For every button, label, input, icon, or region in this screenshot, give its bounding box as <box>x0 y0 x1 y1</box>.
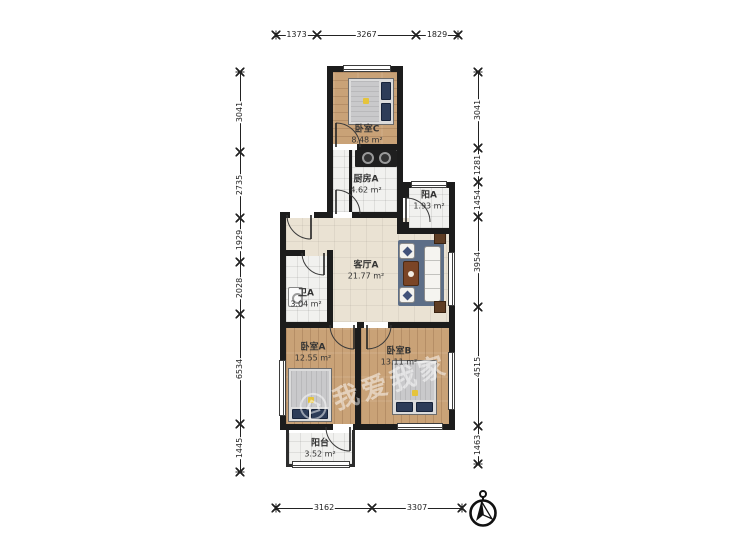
wall <box>403 188 409 198</box>
dimension-endbar <box>474 72 483 73</box>
dimension-tick <box>474 422 483 431</box>
bed-b <box>392 360 437 415</box>
dimension-label: 1929 <box>236 229 244 251</box>
wall <box>388 322 455 328</box>
window <box>292 461 350 468</box>
dimension-tick <box>474 213 483 222</box>
balcony-floor <box>289 433 352 464</box>
window <box>448 352 455 410</box>
window <box>279 360 286 416</box>
dimension-endbar <box>236 472 245 473</box>
wall <box>355 328 361 424</box>
dimension-tick <box>474 178 483 187</box>
corridor-floor <box>333 150 349 212</box>
dimension-endbar <box>474 464 483 465</box>
washing-machine <box>288 287 303 307</box>
dimension-tick <box>368 504 377 513</box>
balcony-wall <box>286 430 289 467</box>
window <box>397 423 443 430</box>
window <box>448 252 455 306</box>
dimension-label: 2028 <box>236 277 244 299</box>
dimension-endbar <box>276 504 277 513</box>
window <box>411 181 447 188</box>
dimension-label: 1445 <box>236 437 244 459</box>
side-table <box>434 301 446 313</box>
dimension-endbar <box>458 31 459 40</box>
window <box>343 65 391 72</box>
wall <box>352 212 403 218</box>
dimension-tick <box>236 214 245 223</box>
bed-pillow <box>311 409 328 419</box>
bed-pillow <box>381 103 391 121</box>
dimension-label: 1281 <box>474 154 482 176</box>
bed-pillow <box>416 402 433 412</box>
wall <box>403 228 455 234</box>
dimension-tick <box>236 310 245 319</box>
bed-c <box>348 78 394 125</box>
accent-pillow <box>412 390 418 396</box>
wall <box>314 212 333 218</box>
dimension-label: 2735 <box>236 174 244 196</box>
dimension-label: 6534 <box>236 358 244 380</box>
wall <box>357 144 397 150</box>
dimension-tick <box>236 420 245 429</box>
wall <box>286 250 305 256</box>
dimension-endbar <box>462 504 463 513</box>
armchair <box>399 287 415 303</box>
dimension-chain-left: 304127351929202865341445 <box>233 72 247 472</box>
dimension-endbar <box>276 31 277 40</box>
dimension-label: 1829 <box>426 31 448 39</box>
floor-plan-canvas: 卧室C8.48 m²厨房A4.62 m²阳A1.93 m²客厅A21.77 m²… <box>0 0 729 547</box>
north-compass-icon <box>466 486 500 534</box>
dimension-tick <box>474 303 483 312</box>
accent-pillow <box>363 98 369 104</box>
coffee-table <box>403 261 419 286</box>
dimension-label: 4515 <box>474 355 482 377</box>
kitchen-stove <box>355 150 397 167</box>
wall <box>280 322 333 328</box>
wall <box>327 250 333 322</box>
dimension-label: 3267 <box>355 31 377 39</box>
armchair <box>399 243 415 259</box>
dimension-endbar <box>236 72 245 73</box>
wall <box>327 66 333 218</box>
dimension-label: 1454 <box>474 188 482 210</box>
dimension-label: 3162 <box>313 504 335 512</box>
balcony-wall <box>352 430 355 467</box>
sofa <box>424 246 441 302</box>
balcony-a-floor <box>409 188 449 228</box>
bed-pillow <box>396 402 413 412</box>
stove-burner <box>379 152 391 164</box>
dimension-chain-bottom: 31623307 <box>276 501 462 515</box>
dimension-chain-right: 304112811454395445151463 <box>471 72 485 464</box>
dimension-label: 3954 <box>474 251 482 273</box>
dimension-tick <box>474 144 483 153</box>
stove-burner <box>362 152 374 164</box>
dimension-line <box>240 72 241 472</box>
wall <box>349 150 352 212</box>
dimension-tick <box>412 31 421 40</box>
dimension-label: 3307 <box>406 504 428 512</box>
wall <box>397 66 403 234</box>
dimension-label: 3041 <box>474 99 482 121</box>
dimension-label: 1463 <box>474 434 482 456</box>
dimension-label: 1373 <box>285 31 307 39</box>
accent-pillow <box>308 397 314 403</box>
dimension-chain-top: 137332671829 <box>276 28 458 42</box>
bed-pillow <box>381 82 391 100</box>
dimension-tick <box>313 31 322 40</box>
bed-pillow <box>292 409 309 419</box>
bed-a <box>288 368 332 422</box>
dimension-tick <box>236 258 245 267</box>
dimension-tick <box>236 148 245 157</box>
dimension-label: 3041 <box>236 101 244 123</box>
